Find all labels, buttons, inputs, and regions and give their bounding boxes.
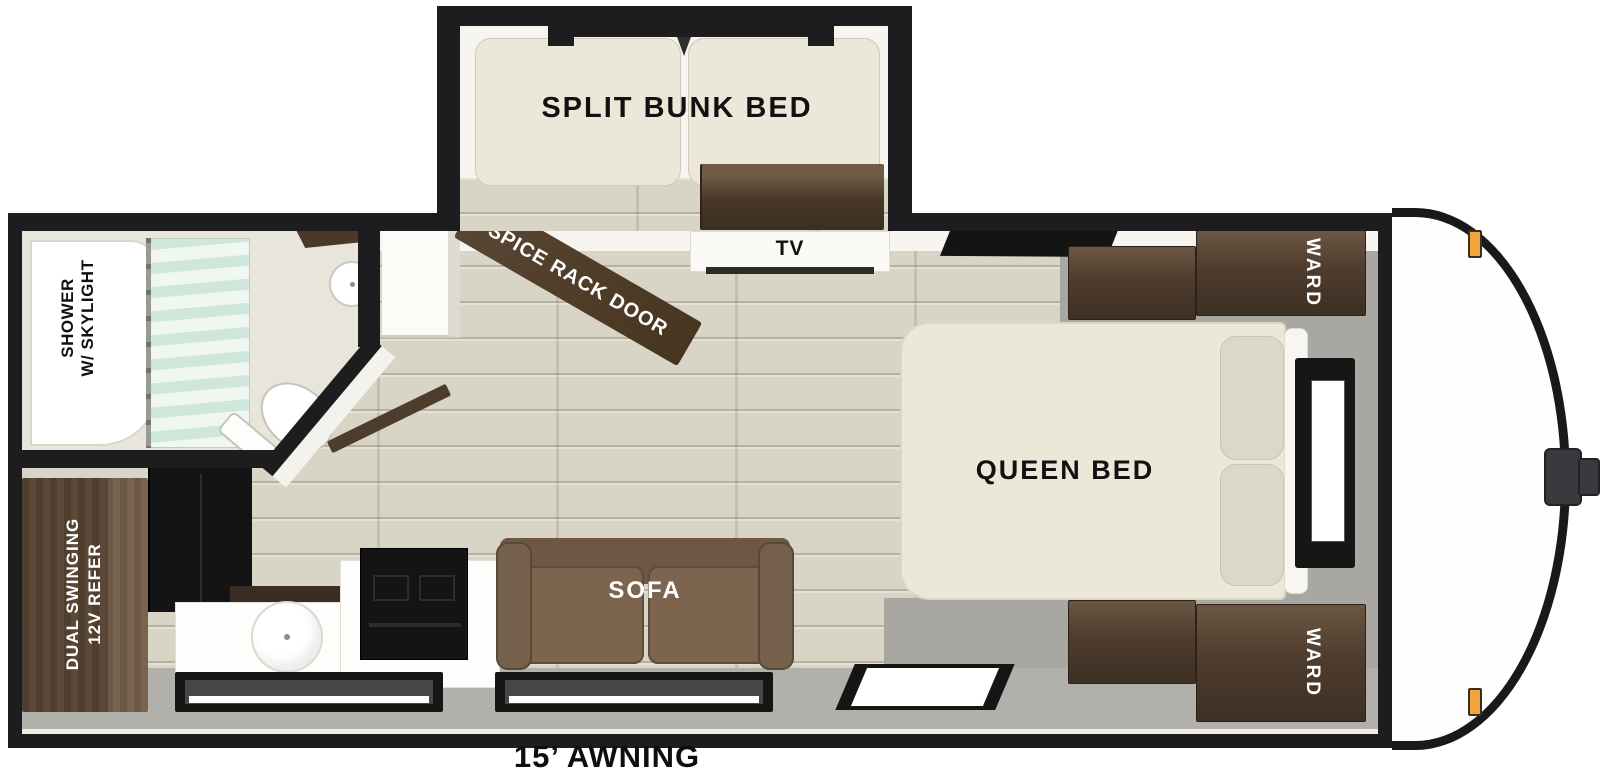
shower-label-line2: W/ SKYLIGHT bbox=[78, 260, 98, 377]
window-sofa bbox=[495, 672, 773, 712]
refrigerator-label: DUAL SWINGING 12V REFER bbox=[62, 484, 106, 704]
wardrobe-bottom-label: WARD bbox=[1301, 623, 1323, 703]
wardrobe-top-label: WARD bbox=[1301, 233, 1323, 313]
floorplan-canvas: SHOWER W/ SKYLIGHT DUAL SWINGING 12V REF… bbox=[0, 0, 1600, 776]
marker-light-top bbox=[1468, 230, 1482, 258]
awning-label: 15’ AWNING bbox=[357, 740, 857, 774]
pillow-top bbox=[1220, 336, 1284, 460]
range-burner-right bbox=[419, 575, 455, 601]
tv-label: TV bbox=[690, 236, 890, 262]
shower-label-line1: SHOWER bbox=[58, 260, 78, 377]
tv-screen bbox=[706, 267, 874, 274]
bunk-window-bar bbox=[560, 24, 822, 37]
bedroom-window-glass bbox=[1311, 380, 1345, 542]
bedroom-window bbox=[1295, 358, 1355, 568]
range-handle bbox=[369, 623, 461, 627]
hitch-coupler bbox=[1578, 458, 1600, 496]
left-wall bbox=[8, 213, 22, 748]
pillow-bottom bbox=[1220, 464, 1284, 586]
top-wall-right bbox=[912, 213, 1390, 231]
bed-cabinet-bottom bbox=[1068, 600, 1196, 684]
range-burner-left bbox=[373, 575, 409, 601]
shower-curtain-rod bbox=[146, 238, 151, 448]
bathroom-right-wall bbox=[358, 213, 380, 347]
sofa-label: SOFA bbox=[560, 576, 730, 606]
top-wall-left bbox=[8, 213, 437, 231]
wardrobe-bottom bbox=[1196, 604, 1366, 722]
refrigerator-label-line2: 12V REFER bbox=[84, 518, 106, 670]
hitch-body bbox=[1544, 448, 1582, 506]
sofa-armrest-right bbox=[758, 542, 794, 670]
bunk-label: SPLIT BUNK BED bbox=[477, 90, 877, 126]
queen-bed-label: QUEEN BED bbox=[930, 452, 1200, 488]
shower-label: SHOWER W/ SKYLIGHT bbox=[55, 218, 101, 418]
window-kitchen bbox=[175, 672, 443, 712]
hall-cabinet bbox=[382, 228, 460, 338]
refrigerator-label-line1: DUAL SWINGING bbox=[62, 518, 84, 670]
entry-door bbox=[835, 664, 1015, 710]
bathroom-bottom-wall bbox=[8, 450, 278, 468]
kitchen-sink-drain bbox=[284, 634, 290, 640]
sofa-armrest-left bbox=[496, 542, 532, 670]
window-sofa-sill bbox=[509, 696, 759, 703]
window-kitchen-sill bbox=[189, 696, 429, 703]
marker-light-bottom bbox=[1468, 688, 1482, 716]
bunk-dresser bbox=[700, 164, 884, 230]
range-cooktop bbox=[360, 548, 468, 660]
bed-cabinet-top bbox=[1068, 246, 1196, 320]
bathroom-sink-drain bbox=[350, 282, 355, 287]
wardrobe-top bbox=[1196, 230, 1366, 316]
pantry-seam bbox=[200, 474, 202, 606]
